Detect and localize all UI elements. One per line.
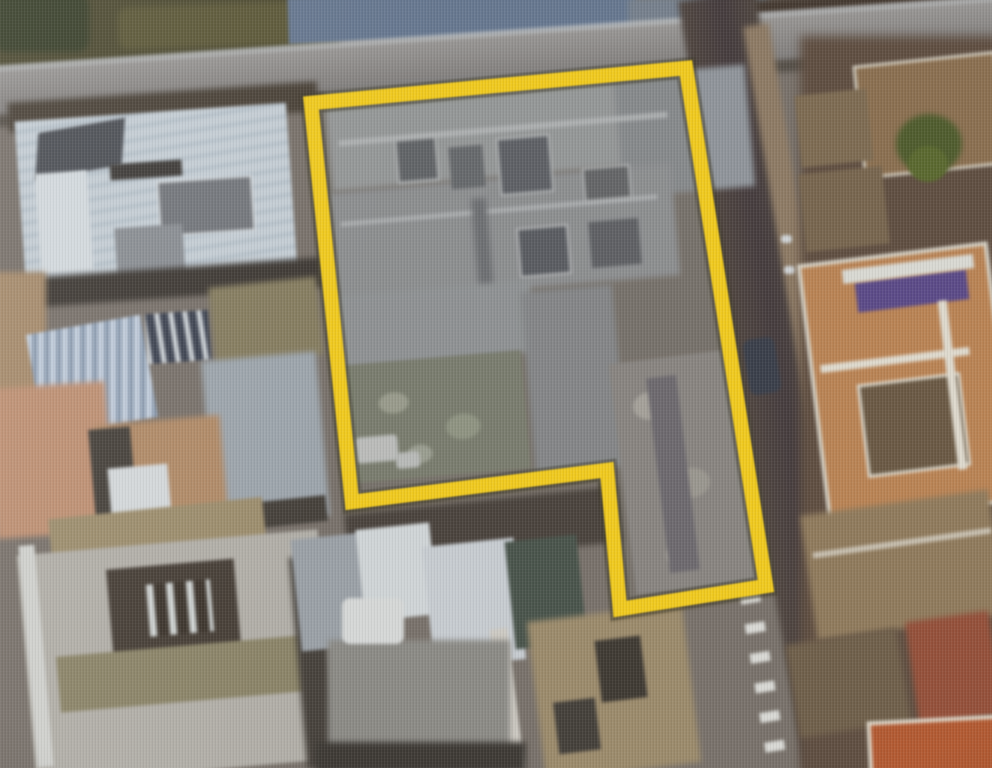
- parcel-outline-layer: [0, 0, 992, 768]
- map-canvas[interactable]: [0, 0, 992, 768]
